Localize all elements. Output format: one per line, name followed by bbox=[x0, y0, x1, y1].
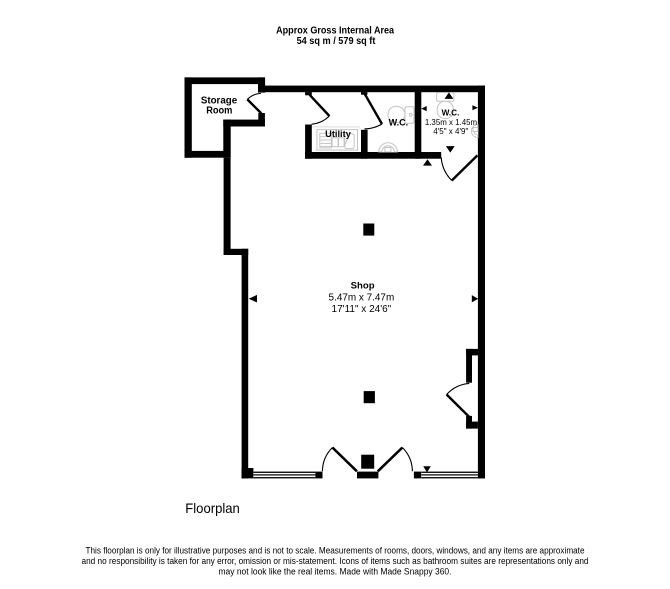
svg-text:5.47m x 7.47m: 5.47m x 7.47m bbox=[329, 293, 395, 304]
svg-text:Utility: Utility bbox=[325, 129, 351, 140]
svg-text:Floorplan: Floorplan bbox=[185, 500, 240, 516]
svg-text:Shop: Shop bbox=[351, 281, 375, 292]
svg-text:Room: Room bbox=[206, 105, 232, 116]
svg-text:4'5" x 4'9": 4'5" x 4'9" bbox=[433, 126, 468, 136]
svg-text:may not look like the real ite: may not look like the real items. Made w… bbox=[219, 567, 452, 577]
svg-text:Approx Gross Internal Area: Approx Gross Internal Area bbox=[276, 25, 395, 36]
svg-text:This floorplan is only for ill: This floorplan is only for illustrative … bbox=[86, 546, 585, 556]
svg-text:W.C.: W.C. bbox=[389, 118, 409, 129]
svg-text:17'11" x 24'6": 17'11" x 24'6" bbox=[332, 304, 392, 315]
svg-text:54 sq m / 579 sq ft: 54 sq m / 579 sq ft bbox=[297, 36, 376, 47]
svg-text:and no responsibility is taken: and no responsibility is taken for any e… bbox=[82, 556, 589, 566]
